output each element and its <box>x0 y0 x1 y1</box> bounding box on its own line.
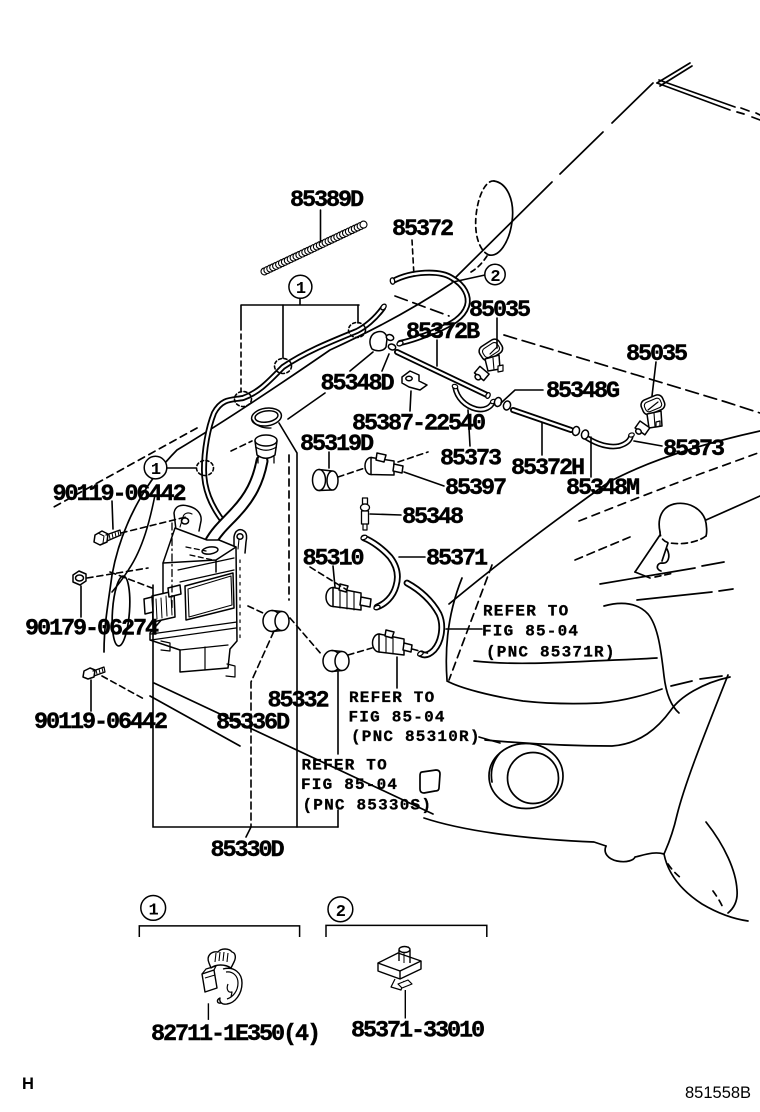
svg-text:(PNC 85371R): (PNC 85371R) <box>486 644 616 662</box>
svg-text:85310: 85310 <box>303 546 364 573</box>
svg-text:FIG 85-04: FIG 85-04 <box>349 709 446 727</box>
svg-text:REFER TO: REFER TO <box>483 603 569 621</box>
svg-text:REFER TO: REFER TO <box>302 757 388 775</box>
svg-text:82711-1E350(4): 82711-1E350(4) <box>151 1021 319 1048</box>
svg-text:851558B: 851558B <box>685 1084 751 1102</box>
svg-text:85389D: 85389D <box>290 187 364 214</box>
svg-text:1: 1 <box>296 280 306 299</box>
svg-text:85371: 85371 <box>426 546 488 573</box>
svg-text:85348D: 85348D <box>321 371 395 398</box>
svg-text:85371-33010: 85371-33010 <box>351 1018 484 1045</box>
svg-text:(PNC 85310R): (PNC 85310R) <box>351 728 481 746</box>
svg-text:85397: 85397 <box>445 475 506 502</box>
svg-text:90119-06442: 90119-06442 <box>53 481 186 508</box>
svg-text:85035: 85035 <box>469 297 530 324</box>
svg-text:FIG 85-04: FIG 85-04 <box>301 776 398 794</box>
svg-text:85319D: 85319D <box>300 431 374 458</box>
svg-text:2: 2 <box>490 268 500 287</box>
svg-text:85373: 85373 <box>663 436 724 463</box>
svg-text:85373: 85373 <box>440 446 501 473</box>
svg-text:FIG 85-04: FIG 85-04 <box>482 623 579 641</box>
svg-text:85035: 85035 <box>626 341 687 368</box>
svg-text:1: 1 <box>148 902 158 921</box>
svg-text:1: 1 <box>151 461 161 480</box>
svg-text:REFER TO: REFER TO <box>349 689 435 707</box>
svg-text:85336D: 85336D <box>216 710 290 737</box>
svg-text:85348G: 85348G <box>546 378 619 405</box>
svg-text:85372B: 85372B <box>406 319 480 346</box>
svg-text:H: H <box>22 1075 34 1093</box>
svg-text:85330D: 85330D <box>211 837 285 864</box>
svg-text:85372: 85372 <box>392 216 453 243</box>
svg-text:90119-06442: 90119-06442 <box>34 709 167 736</box>
svg-text:85348M: 85348M <box>566 475 639 502</box>
svg-text:(PNC 85330S): (PNC 85330S) <box>303 797 433 815</box>
svg-text:85348: 85348 <box>402 504 463 531</box>
svg-text:90179-06274: 90179-06274 <box>25 616 159 643</box>
svg-text:2: 2 <box>336 903 346 922</box>
